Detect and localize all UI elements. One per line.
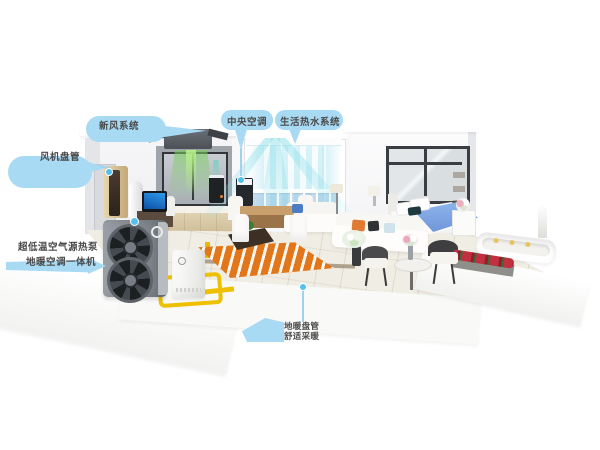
nightstand-flowers <box>456 198 470 212</box>
bedroom-window-mullion-v <box>424 148 427 196</box>
table-flowers <box>402 234 418 246</box>
fan-hub <box>123 273 138 288</box>
label-central-ac: 中央空调 <box>227 114 267 128</box>
appliance-indicator <box>220 195 223 198</box>
connector-dot <box>237 176 245 184</box>
flower-bouquet <box>342 230 366 248</box>
bedroom-window-mullion-h <box>388 162 462 165</box>
connector-dot <box>105 168 113 176</box>
round-table <box>394 258 432 272</box>
hydronic-module-vents <box>176 288 201 292</box>
floor-lamp-shade <box>330 184 343 193</box>
label-floor-heating-line2: 舒适采暖 <box>284 330 319 342</box>
bath-figurine <box>538 206 547 238</box>
nightstand <box>452 210 476 236</box>
label-fan-coil: 风机盘管 <box>40 149 80 163</box>
water-purifier <box>166 196 175 216</box>
label-heat-pump-line1: 超低温空气源热泵 <box>18 239 98 253</box>
table-lamp <box>368 186 380 196</box>
fan-hub <box>123 240 138 255</box>
roof-edge-right <box>344 124 478 132</box>
leader-line-floor-heating <box>302 286 304 322</box>
table-lamp-base <box>373 196 376 206</box>
kitchen-appliance <box>209 175 224 203</box>
hydronic-module-logo <box>178 257 186 265</box>
scene-canvas: 新风系统 中央空调 生活热水系统 风机盘管 超低温空气源热泵 地暖空调一体机 地… <box>0 0 600 450</box>
flower-vase <box>352 246 361 266</box>
label-heat-pump-line2: 地暖空调一体机 <box>26 254 96 268</box>
pillow <box>384 223 395 233</box>
label-hot-water: 生活热水系统 <box>280 114 340 128</box>
pillow <box>368 221 380 232</box>
connector-dot <box>299 283 307 291</box>
table-vase <box>408 244 413 260</box>
dining-table-top <box>240 206 294 215</box>
indoor-cabinet-panel <box>109 170 120 216</box>
heat-pump-logo <box>151 226 163 238</box>
tv-screen <box>144 193 165 209</box>
patio-chair-cushion <box>364 258 388 268</box>
pillow <box>292 204 303 213</box>
dining-chair <box>232 214 249 242</box>
patio-chair-cushion <box>430 252 458 264</box>
dining-chair <box>290 214 307 242</box>
connector-dot <box>130 217 139 226</box>
label-fresh-air: 新风系统 <box>99 118 139 132</box>
fresh-air-flow-core <box>186 150 196 194</box>
